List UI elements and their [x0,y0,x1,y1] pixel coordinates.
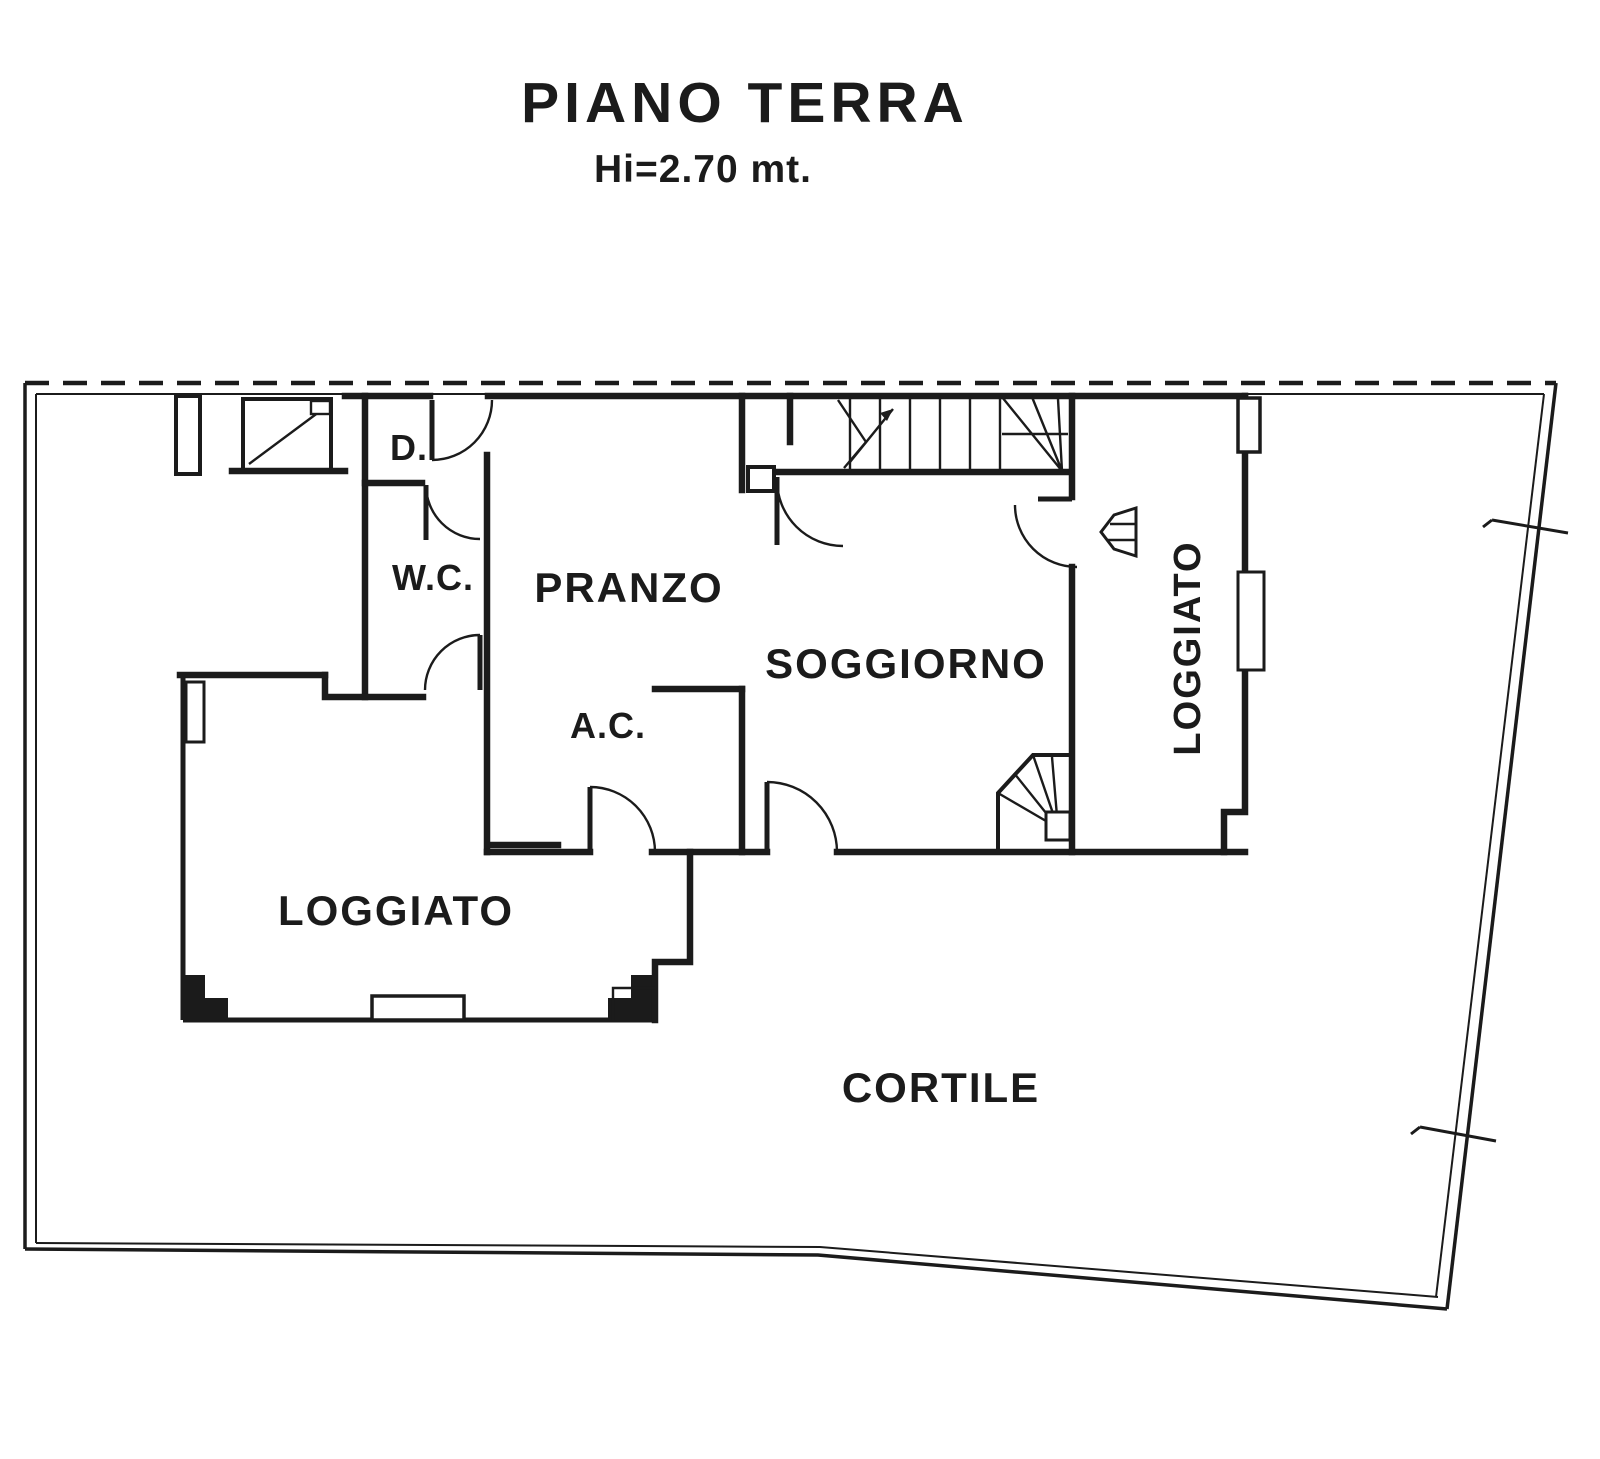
pillar-stair-landing [748,467,774,491]
label-room-pranzo: PRANZO [534,564,723,611]
label-room-soggiorno: SOGGIORNO [765,640,1047,687]
door-arc-wc [425,635,480,690]
boundary-tick-lower [1411,1127,1496,1141]
door-arc-soggiorno-south [767,782,837,852]
property-boundary [25,383,1568,1309]
plan-height-note: Hi=2.70 mt. [594,148,812,191]
window-loggiato-right [1238,572,1264,670]
stair-direction-arrow [880,409,893,421]
pillar-loggiato-left-sw [183,975,228,1020]
door-arc-d-entry [432,400,492,460]
label-room-loggiato-left: LOGGIATO [278,887,514,934]
building-walls [325,396,1264,852]
boundary-right-inner-line [1436,394,1544,1297]
label-room-loggiato-right: LOGGIATO [1167,540,1209,755]
floorplan-drawing: PIANO TERRA Hi=2.70 mt. [0,0,1600,1459]
vent-symbol [1101,508,1136,556]
pillar-loggiato-left-mid [372,996,464,1020]
boundary-tick-upper [1483,520,1568,533]
wall-pranzo-west [487,455,558,852]
floorplan-page: PIANO TERRA Hi=2.70 mt. [0,0,1600,1459]
winder-newel [1046,812,1070,840]
plan-title: PIANO TERRA [521,71,969,135]
pillar-loggiato-left-nw [186,682,204,742]
door-arc-loggiato-right [1015,505,1077,567]
boundary-bottom-outer-line [25,1249,1447,1309]
staircase-main [838,397,1068,471]
exterior-topleft [176,396,345,474]
door-arc-soggiorno-entry [777,480,843,546]
label-room-wc: W.C. [392,557,474,598]
title-block: PIANO TERRA Hi=2.70 mt. [521,71,969,191]
door-arc-d-lobby [426,485,480,539]
pillar-loggiato-right-north [1238,398,1260,452]
label-room-ac: A.C. [570,705,646,746]
wall-passage-east [655,852,690,1020]
loggiato-right-symbol [1101,508,1136,556]
staircase-winder [998,755,1072,852]
exterior-stair-step [311,401,330,414]
wall-stub-topleft [176,396,200,474]
wall-wc-south [325,675,423,697]
label-area-cortile: CORTILE [842,1064,1040,1111]
label-room-d: D. [390,427,428,468]
door-arc-ac [590,787,655,852]
pillar-loggiato-left-se [608,975,653,1020]
